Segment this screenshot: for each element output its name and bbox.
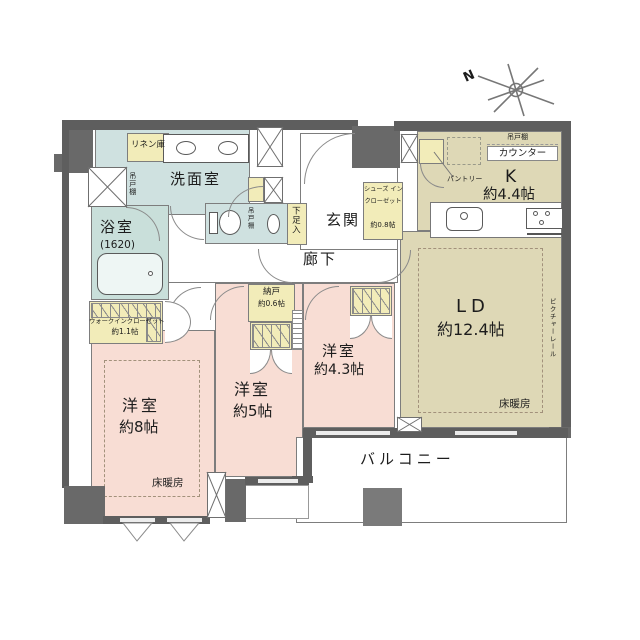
label-ld-heating: 床暖房 — [499, 399, 531, 411]
pillar-top-middle — [352, 126, 400, 168]
vanity-sink-right-icon — [218, 141, 238, 155]
pillar-bottom-left — [64, 486, 105, 524]
window-bedroom8-south2 — [167, 518, 202, 522]
pillar-balcony — [363, 488, 402, 526]
laundry-pan-box — [88, 167, 127, 207]
label-bedroom5-size: 約5帖 — [233, 403, 273, 420]
wall-top — [62, 120, 358, 130]
label-pantry: パントリー — [447, 176, 482, 184]
vanity-sink-left-icon — [176, 141, 196, 155]
window-bedroom43-south — [316, 431, 390, 435]
label-wic: ウォークインクローゼット — [89, 319, 161, 326]
label-bedroom8-heating: 床暖房 — [152, 478, 184, 490]
kitchen-sink-faucet-icon — [460, 212, 468, 220]
label-shoe-closet-2: クローゼット — [364, 199, 402, 206]
floor-plan: 洗面室 リネン庫 吊戸棚 浴室 (1620) ウォークインクローゼット 約1.1… — [0, 0, 640, 640]
bathtub-drain-icon — [148, 271, 153, 276]
label-bedroom8-size: 約8帖 — [119, 419, 159, 436]
label-wic-size: 約1.1帖 — [89, 328, 161, 336]
label-washroom: 洗面室 — [170, 171, 221, 188]
compass-icon — [478, 64, 554, 116]
window-bedroom5-south — [258, 479, 298, 483]
label-bath: 浴室 — [100, 219, 134, 236]
pipe-space-entrance — [264, 177, 283, 203]
label-bedroom5: 洋室 — [234, 381, 270, 399]
stove-grill-line — [527, 233, 563, 235]
hanger-pipe-bedroom43 — [352, 288, 390, 314]
pillar-bottom-middle — [225, 479, 246, 522]
label-kitchen-size: 約4.4帖 — [483, 188, 535, 204]
pipe-space-kitchen — [401, 134, 418, 163]
label-bedroom43-size: 約4.3帖 — [314, 363, 364, 378]
window-ld-south — [455, 431, 517, 435]
hanger-pipe-bedroom5 — [252, 324, 290, 348]
bathtub-icon — [97, 253, 163, 295]
label-laundry-shelf: 吊戸棚 — [128, 172, 136, 214]
label-kitchen: K — [505, 168, 516, 187]
closet-pantry — [419, 139, 444, 164]
label-ld: LD — [456, 297, 490, 317]
service-void — [245, 485, 309, 519]
kitchen-shelf-dashline — [487, 144, 558, 146]
toilet-tank-icon — [209, 212, 218, 234]
label-linen: リネン庫 — [128, 141, 168, 150]
toilet-basin-icon — [267, 214, 280, 234]
label-ld-size: 約12.4帖 — [437, 321, 505, 339]
pipe-space-balcony — [397, 417, 422, 432]
label-bedroom43: 洋室 — [322, 343, 356, 360]
wall-left — [62, 130, 69, 488]
label-bedroom8: 洋室 — [122, 397, 160, 415]
wall-right — [562, 121, 571, 436]
label-kitchen-shelf: 吊戸棚 — [507, 134, 528, 142]
stove-burner2-icon — [545, 211, 550, 216]
bay-window-icons — [123, 523, 199, 541]
label-balcony: バルコニー — [360, 451, 455, 468]
label-kitchen-counter: カウンター — [487, 149, 558, 159]
label-hallway: 廊下 — [303, 251, 337, 268]
label-shoe-closet-size: 約0.8帖 — [364, 222, 402, 230]
pipe-duct — [292, 310, 303, 350]
label-picture-rail: ピクチャーレール — [548, 298, 555, 370]
stove-burner1-icon — [533, 211, 538, 216]
label-shoe-closet-1: シューズ イン — [364, 187, 402, 194]
label-compass-n: N — [462, 68, 478, 85]
pipe-space-top — [257, 127, 283, 167]
label-storage-size: 約0.6帖 — [248, 300, 295, 308]
hanger-pipe-wic — [91, 303, 161, 318]
label-toilet-shelf: 吊戸棚 — [246, 207, 253, 241]
label-bath-size: (1620) — [100, 240, 135, 252]
label-entrance: 玄関 — [326, 212, 360, 229]
stove-burner3-icon — [539, 220, 544, 225]
label-shoe-cabinet: 下足入 — [290, 206, 299, 244]
window-bedroom8-south1 — [120, 518, 155, 522]
pipe-space-bottom — [207, 472, 226, 518]
kitchen-cupboard-dashed — [447, 137, 481, 165]
label-storage: 納戸 — [248, 288, 295, 297]
wall-top-right — [394, 121, 571, 131]
